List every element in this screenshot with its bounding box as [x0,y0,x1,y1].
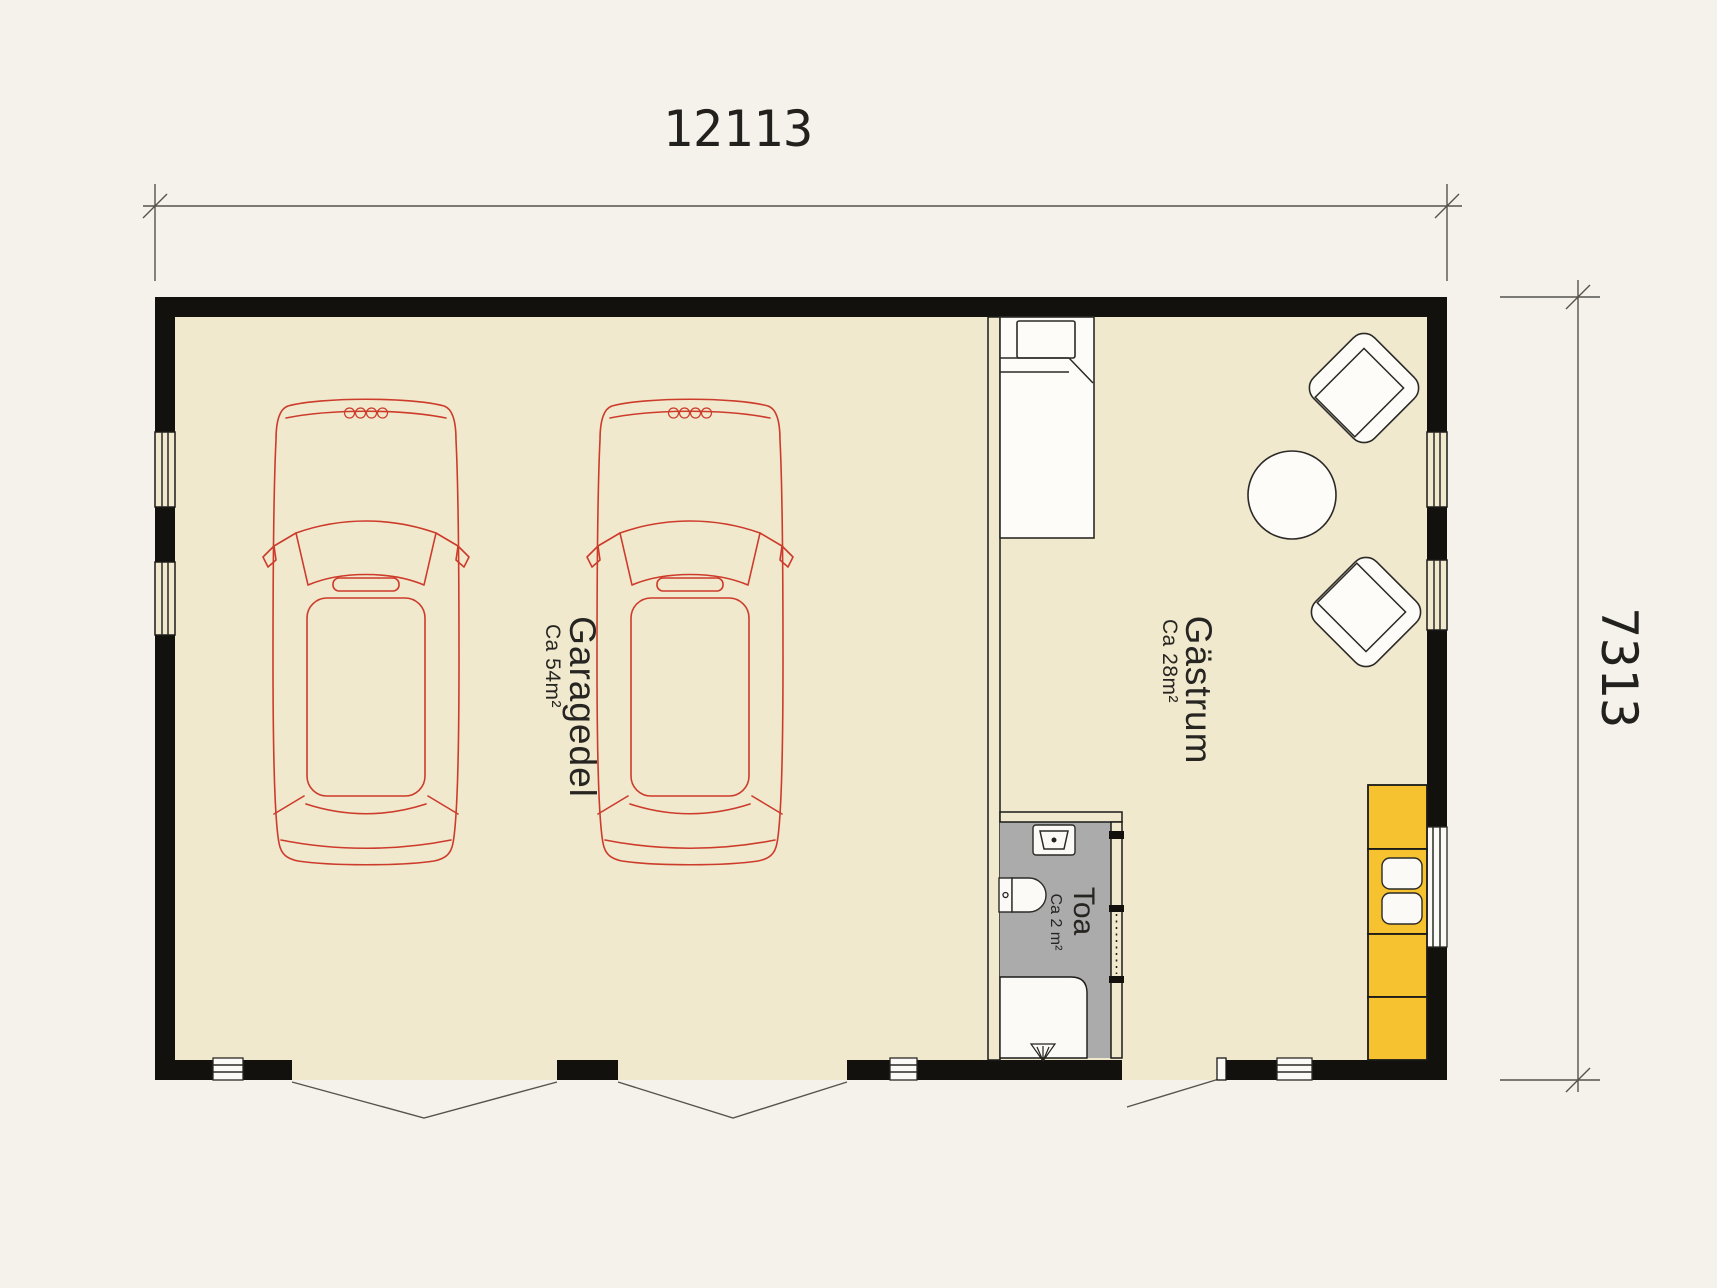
garage-door-opening-2 [618,1058,847,1080]
window-right-kitchen [1427,827,1447,947]
garage-room-area: Ca 54m² [541,624,564,708]
dimension-right-lines [1500,280,1600,1092]
bed [1000,317,1094,538]
floorplan-page: 12113 7313 [0,0,1717,1288]
garage-door-opening-1 [292,1058,557,1080]
shower-area [1000,977,1087,1058]
window-right-2 [1427,560,1447,630]
window-left-2 [155,562,175,635]
entry-door-swing-line [1127,1079,1219,1107]
window-left-1 [155,432,175,507]
stove-plate-1 [1382,858,1422,889]
partition-wall [988,317,1000,1060]
toilet-icon [999,878,1046,912]
window-bottom-2 [890,1058,917,1080]
sink-icon [1033,825,1075,855]
entry-door-leaf [1217,1058,1226,1080]
bathroom-top-wall [1000,812,1122,822]
entry-door-opening [1122,1058,1217,1080]
garage-room-label: Garagedel [562,616,603,798]
interior-floor [175,317,1427,1060]
window-bottom-3 [1277,1058,1312,1080]
kitchen-cabinet-4 [1368,997,1427,1060]
dimension-top: 12113 [143,100,1462,281]
kitchen-units [1368,785,1427,1060]
stove-plate-2 [1382,893,1422,924]
floorplan-drawing: 12113 7313 [0,0,1717,1288]
toilet-room-area: Ca 2 m² [1047,894,1064,952]
garage-door-swing-lines [292,1082,847,1118]
window-right-1 [1427,432,1447,507]
round-table [1248,451,1336,539]
toilet-room-label: Toa [1067,887,1100,936]
dimension-right: 7313 [1500,280,1648,1092]
dimension-width-label: 12113 [663,100,814,158]
guest-room-area: Ca 28m² [1158,619,1181,703]
kitchen-cabinet-1 [1368,785,1427,849]
guest-room-label: Gästrum [1178,616,1219,765]
dimension-depth-label: 7313 [1590,608,1648,728]
dimension-top-lines [143,184,1462,281]
kitchen-cabinet-3 [1368,934,1427,997]
window-bottom-1 [213,1058,243,1080]
